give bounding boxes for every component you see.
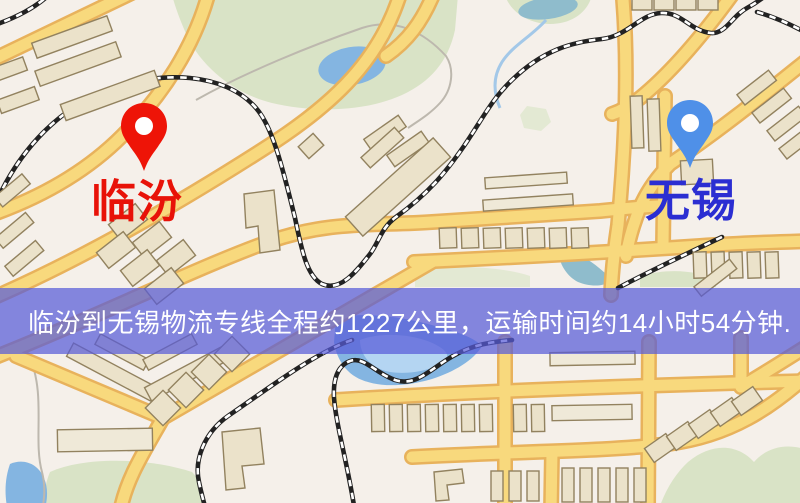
origin-pin-hole bbox=[135, 117, 153, 135]
map-screenshot: 临汾 无锡 临汾到无锡物流专线全程约1227公里，运输时间约14小时54分钟. bbox=[0, 0, 800, 503]
route-info-banner: 临汾到无锡物流专线全程约1227公里，运输时间约14小时54分钟. bbox=[0, 288, 800, 354]
origin-pin-icon bbox=[121, 103, 167, 171]
route-info-text: 临汾到无锡物流专线全程约1227公里，运输时间约14小时54分钟. bbox=[28, 303, 791, 340]
origin-label: 临汾 bbox=[91, 176, 183, 227]
map-canvas: 临汾 无锡 bbox=[0, 0, 800, 503]
destination-pin-hole bbox=[681, 114, 699, 132]
origin-pin-shape bbox=[121, 103, 167, 171]
destination-label: 无锡 bbox=[645, 175, 737, 226]
